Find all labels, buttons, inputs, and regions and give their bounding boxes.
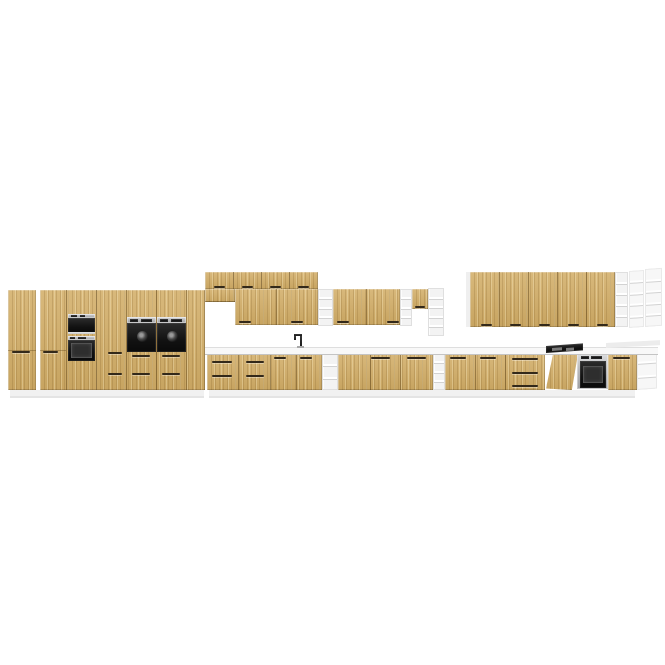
floor-shadow-left bbox=[10, 396, 204, 398]
wall-cab-left-handle-1 bbox=[239, 321, 251, 323]
drawer-stack-handle-3 bbox=[512, 385, 538, 387]
mid-oven-1-display bbox=[130, 319, 138, 322]
mid-oven-1-drawer-handle-upper bbox=[132, 355, 150, 357]
countertop bbox=[205, 347, 658, 355]
right-row-seam-4 bbox=[586, 272, 587, 327]
microwave-door bbox=[68, 318, 95, 333]
tall-cabinet-1-handle bbox=[12, 351, 30, 353]
mid-oven-1-buttons bbox=[141, 319, 152, 322]
oven-tower-button-2 bbox=[78, 337, 86, 339]
right-wall-cabinet-row bbox=[470, 272, 615, 327]
wall-open-shelf-2-board-2 bbox=[401, 307, 411, 309]
base-seam-2 bbox=[270, 353, 271, 390]
tall-cabinet-3-handle-lower bbox=[108, 373, 122, 375]
mid-oven-2-display bbox=[160, 319, 168, 322]
base-open-shelf-1-board-1 bbox=[323, 364, 337, 366]
mid-oven-2-dial bbox=[167, 331, 178, 342]
kitchen-product-render bbox=[0, 0, 665, 665]
right-wall-open-shelf-board-3 bbox=[616, 304, 627, 306]
drawer-unit-2-handle-bottom bbox=[246, 375, 264, 377]
cooktop-burner-2 bbox=[566, 347, 574, 351]
right-wall-shelf-perspective-2-board-2 bbox=[646, 290, 661, 293]
right-wall-open-shelf bbox=[615, 272, 628, 327]
wall-cab-right-handle-1 bbox=[337, 321, 349, 323]
wall-open-shelf-3-board-3 bbox=[429, 316, 443, 318]
base-seam-1 bbox=[238, 353, 239, 390]
wall-open-shelf-3-board-1 bbox=[429, 297, 443, 299]
mid-oven-2-drawer-handle-upper bbox=[162, 355, 180, 357]
top-row-handle-3 bbox=[270, 286, 281, 288]
right-wall-open-shelf-board-1 bbox=[616, 282, 627, 284]
right-row-seam-1 bbox=[499, 272, 500, 327]
mid-oven-2-buttons bbox=[171, 319, 182, 322]
mid-oven-1-drawer-handle-lower bbox=[132, 373, 150, 375]
floor-shadow-base-row bbox=[209, 396, 635, 398]
base-end-shelf-perspective-board-2 bbox=[638, 375, 656, 378]
wall-open-shelf-3 bbox=[428, 288, 444, 336]
tall-cabinet-1 bbox=[8, 290, 36, 390]
base-open-shelf-2-board-2 bbox=[434, 371, 444, 373]
base-right-seam-2 bbox=[505, 353, 506, 390]
microwave-button-1 bbox=[71, 315, 77, 317]
base-far-right-handle bbox=[613, 357, 630, 359]
right-row-handle-1 bbox=[481, 324, 492, 326]
tall-run-seam-2 bbox=[96, 290, 97, 390]
wall-cab-right-handle-2 bbox=[387, 321, 399, 323]
wall-open-shelf-1-board-3 bbox=[319, 316, 332, 318]
mid-oven-2-drawer-handle-lower bbox=[162, 373, 180, 375]
wall-open-shelf-3-board-4 bbox=[429, 325, 443, 327]
small-wall-cabinet-handle bbox=[415, 306, 425, 308]
tall-cabinet-2-handle bbox=[43, 351, 58, 353]
base-seam-3 bbox=[296, 353, 297, 390]
wall-cab-right-seam bbox=[366, 289, 367, 325]
right-wall-shelf-perspective-2 bbox=[645, 268, 662, 327]
wall-open-shelf-1-board-2 bbox=[319, 307, 332, 309]
right-row-handle-2 bbox=[510, 324, 521, 326]
base-end-shelf-perspective-board-1 bbox=[638, 361, 656, 364]
base-open-shelf-2-board-1 bbox=[434, 361, 444, 363]
top-row-seam-2 bbox=[261, 272, 262, 289]
right-row-seam-3 bbox=[557, 272, 558, 327]
base-right-handle-2 bbox=[480, 357, 496, 359]
right-wall-shelf-perspective-1-board-3 bbox=[630, 303, 643, 306]
right-wall-shelf-perspective-1-board-4 bbox=[630, 315, 643, 318]
right-wall-shelf-perspective-1-board-1 bbox=[630, 280, 643, 283]
drawer-stack-handle-2 bbox=[512, 372, 538, 374]
drawer-stack-handle-1 bbox=[512, 358, 538, 360]
right-row-handle-4 bbox=[568, 324, 579, 326]
base-right-seam-1 bbox=[475, 353, 476, 390]
right-wall-shelf-perspective-2-board-4 bbox=[646, 313, 661, 316]
wall-open-shelf-2-board-3 bbox=[401, 316, 411, 318]
base-open-shelf-1-board-2 bbox=[323, 377, 337, 379]
hood-cabinet-bottom bbox=[205, 301, 235, 302]
right-wall-shelf-perspective-2-board-3 bbox=[646, 302, 661, 305]
base-open-shelf-1 bbox=[322, 353, 338, 390]
right-row-handle-3 bbox=[539, 324, 550, 326]
faucet-base bbox=[297, 346, 304, 348]
oven-tower-button-1 bbox=[70, 337, 75, 339]
wall-open-shelf-2-board-1 bbox=[401, 297, 411, 299]
sink-cabinet-handle-left bbox=[274, 357, 286, 359]
tall-run-seam-5 bbox=[186, 290, 187, 390]
right-wall-shelf-perspective-1-board-2 bbox=[630, 292, 643, 295]
top-row-seam-3 bbox=[289, 272, 290, 289]
base-open-shelf-2-board-3 bbox=[434, 380, 444, 382]
sink-cabinet-handle-right bbox=[300, 357, 312, 359]
built-in-oven-window bbox=[583, 366, 603, 383]
wall-open-shelf-1-board-1 bbox=[319, 297, 332, 299]
drawer-unit-2-handle-top bbox=[246, 361, 264, 363]
faucet-spout-tip bbox=[294, 336, 296, 340]
microwave-button-2 bbox=[80, 315, 85, 317]
tall-cabinet-3-handle-upper bbox=[108, 352, 122, 354]
wall-cab-left-handle-2 bbox=[291, 321, 303, 323]
top-row-handle-4 bbox=[298, 286, 309, 288]
right-wall-open-shelf-board-4 bbox=[616, 315, 627, 317]
base-mid-handle-1 bbox=[371, 357, 390, 359]
right-row-handle-5 bbox=[597, 324, 608, 326]
top-row-handle-1 bbox=[214, 286, 225, 288]
drawer-unit-1-handle-bottom bbox=[212, 375, 232, 377]
right-wall-open-shelf-board-2 bbox=[616, 293, 627, 295]
wall-open-shelf-2 bbox=[400, 289, 412, 326]
right-wall-shelf-perspective-2-board-1 bbox=[646, 279, 661, 282]
drawer-unit-1-handle-top bbox=[212, 361, 232, 363]
tall-run-seam-1 bbox=[66, 290, 67, 390]
microwave-trim bbox=[68, 332, 95, 334]
base-mid-seam-2 bbox=[400, 353, 401, 390]
wall-open-shelf-1 bbox=[318, 289, 333, 326]
built-in-oven-display bbox=[581, 356, 589, 359]
mid-oven-1-dial bbox=[137, 331, 148, 342]
base-right-handle-1 bbox=[450, 357, 466, 359]
wall-open-shelf-3-board-2 bbox=[429, 306, 443, 308]
built-in-oven-buttons bbox=[591, 356, 602, 359]
oven-tower-window bbox=[71, 343, 92, 358]
base-mid-handle-2 bbox=[407, 357, 426, 359]
dishwasher-open-door bbox=[546, 354, 580, 390]
right-row-seam-2 bbox=[528, 272, 529, 327]
right-wall-shelf-perspective-1 bbox=[629, 270, 644, 328]
top-row-handle-2 bbox=[242, 286, 253, 288]
top-row-seam-1 bbox=[233, 272, 234, 289]
base-open-shelf-2 bbox=[433, 353, 445, 390]
wall-cab-left-seam bbox=[276, 289, 277, 325]
